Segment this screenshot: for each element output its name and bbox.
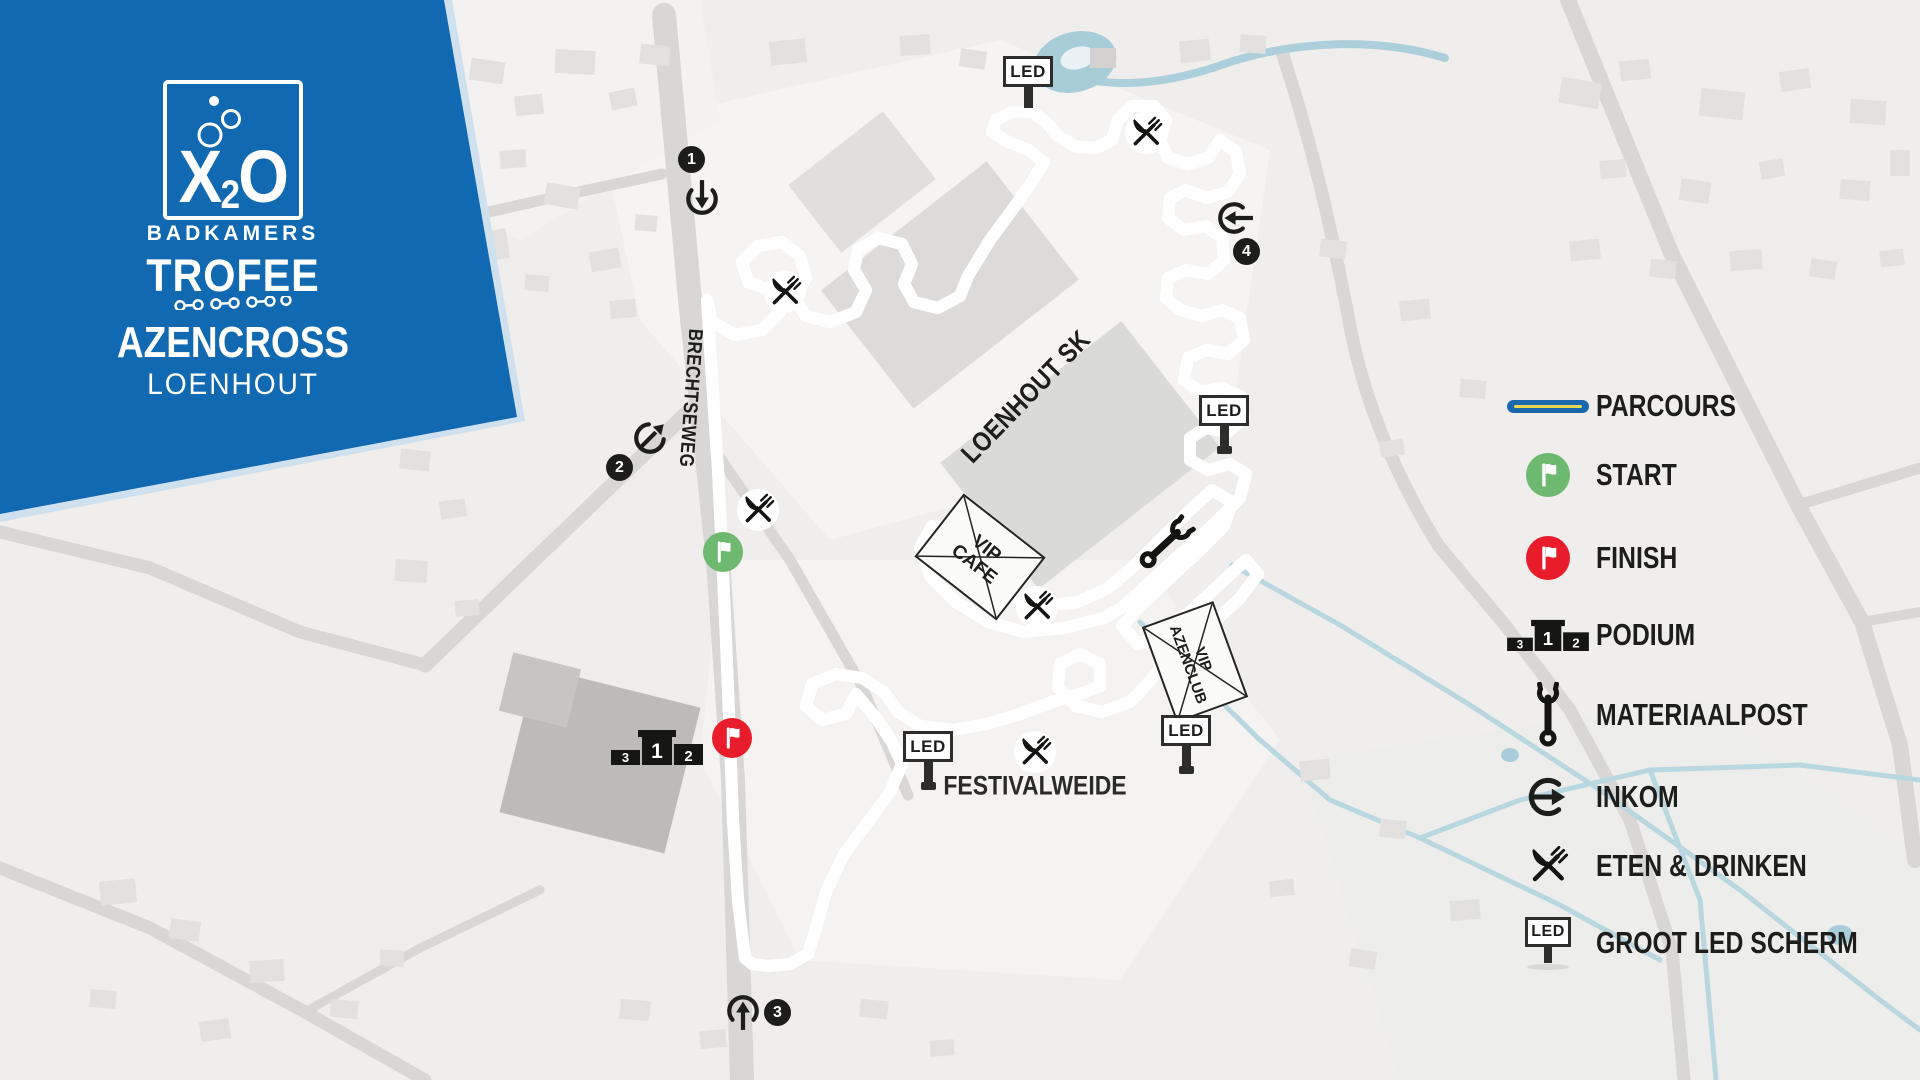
svg-text:3: 3 <box>1517 639 1523 651</box>
parcours-line-icon <box>1507 400 1589 413</box>
led-shadow <box>1527 964 1569 970</box>
led-screen-icon: LED <box>1161 715 1211 746</box>
arrow-left-icon <box>1216 199 1254 237</box>
led-screen-icon: LED <box>1003 56 1053 87</box>
led-foot <box>921 782 936 790</box>
legend-label: FINISH <box>1596 540 1677 576</box>
arrow-down-icon <box>683 179 721 217</box>
podium-icon: 3 1 2 <box>1507 619 1589 651</box>
led-screen-icon: LED <box>1199 395 1249 426</box>
eten-drinken-icon <box>763 270 807 314</box>
legend-label: START <box>1596 457 1677 493</box>
eten-drinken-icon <box>1013 730 1057 774</box>
legend-item-eten-drinken: ETEN & DRINKEN <box>1500 838 1920 894</box>
svg-text:1: 1 <box>1543 628 1553 649</box>
led-screen-icon: LED <box>1525 917 1571 970</box>
course-map-poster: BRECHTSEWEG LOENHOUT SK FESTIVALWEIDE VI… <box>0 0 1920 1080</box>
legend-item-start: START <box>1500 447 1920 503</box>
led-foot <box>1179 766 1194 774</box>
route-marker-1: 1 <box>678 146 705 173</box>
led-post <box>924 762 933 783</box>
eten-drinken-icon <box>1124 111 1168 155</box>
svg-text:2: 2 <box>684 748 692 765</box>
led-post <box>1220 426 1229 447</box>
led-sign-right: LED <box>1198 395 1250 454</box>
led-screen-icon: LED <box>903 731 953 762</box>
event-name: AZENCROSS <box>37 318 428 368</box>
legend-label: ETEN & DRINKEN <box>1596 848 1807 884</box>
svg-text:1: 1 <box>651 740 663 763</box>
led-post <box>1024 87 1033 108</box>
legend-label: GROOT LED SCHERM <box>1596 925 1858 961</box>
legend-item-groot-led-scherm: LED GROOT LED SCHERM <box>1500 915 1920 971</box>
legend-label: PODIUM <box>1596 617 1695 653</box>
svg-text:3: 3 <box>622 750 629 765</box>
arrow-up-icon <box>724 993 762 1031</box>
legend-label: INKOM <box>1596 779 1679 815</box>
start-flag-icon <box>1526 453 1570 497</box>
eten-drinken-icon <box>1521 839 1575 893</box>
field-label: FESTIVALWEIDE <box>943 771 1126 802</box>
eten-drinken-icon <box>736 488 780 532</box>
led-sign-azenclub: LED <box>1160 715 1212 774</box>
led-sign-festivalweide: LED <box>902 731 954 790</box>
legend-label: MATERIAALPOST <box>1596 697 1808 733</box>
event-location: LOENHOUT <box>14 368 452 402</box>
legend-item-parcours: PARCOURS <box>1500 378 1920 434</box>
finish-flag-icon <box>1526 536 1570 580</box>
legend-item-inkom: INKOM <box>1500 769 1920 825</box>
legend-item-podium: 3 1 2 PODIUM <box>1500 607 1920 663</box>
legend-label: PARCOURS <box>1596 388 1736 424</box>
legend-item-materiaalpost: MATERIAALPOST <box>1500 687 1920 743</box>
led-post <box>1182 746 1191 767</box>
route-marker-3: 3 <box>764 999 791 1026</box>
svg-text:2: 2 <box>1572 635 1579 650</box>
logo-badkamers: BADKAMERS <box>0 222 466 246</box>
route-marker-2: 2 <box>606 454 633 481</box>
eten-drinken-icon <box>1015 585 1059 629</box>
arrow-up-right-icon <box>631 419 669 457</box>
start-flag-icon <box>703 532 743 572</box>
chain-icon <box>168 296 298 310</box>
led-foot <box>1217 446 1232 454</box>
podium-icon: 3 1 2 <box>611 729 703 765</box>
inkom-icon <box>1525 774 1571 820</box>
materiaalpost-icon <box>1535 682 1561 748</box>
finish-flag-icon <box>712 718 752 758</box>
logo-trofee: TROFEE <box>19 250 448 302</box>
led-sign-top: LED <box>1002 56 1054 108</box>
legend-item-finish: FINISH <box>1500 530 1920 586</box>
logo-wordmark: X2O <box>28 140 438 232</box>
route-marker-4: 4 <box>1233 238 1260 265</box>
